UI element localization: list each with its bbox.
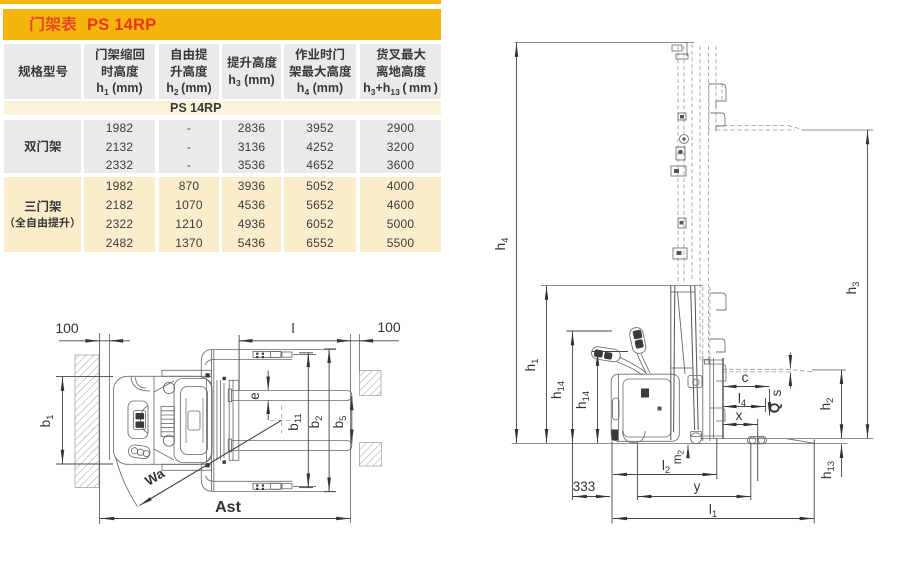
svg-text:h14: h14 bbox=[574, 391, 592, 409]
svg-text:100: 100 bbox=[377, 319, 401, 335]
svg-text:l2: l2 bbox=[662, 458, 670, 476]
svg-text:333: 333 bbox=[573, 479, 596, 494]
svg-text:h14: h14 bbox=[549, 381, 567, 399]
svg-text:b11: b11 bbox=[286, 413, 304, 430]
svg-text:x: x bbox=[736, 408, 743, 423]
svg-text:Wa: Wa bbox=[142, 465, 167, 488]
svg-text:s: s bbox=[769, 389, 784, 396]
svg-text:m2: m2 bbox=[672, 450, 686, 465]
svg-text:e: e bbox=[247, 392, 262, 400]
svg-text:h2: h2 bbox=[818, 398, 836, 411]
svg-text:Ast: Ast bbox=[215, 499, 241, 516]
svg-text:Q: Q bbox=[767, 403, 782, 414]
svg-text:l: l bbox=[291, 320, 294, 336]
svg-text:h13: h13 bbox=[819, 461, 837, 479]
svg-text:100: 100 bbox=[55, 320, 79, 336]
svg-text:h1: h1 bbox=[523, 359, 541, 372]
svg-text:h3: h3 bbox=[844, 282, 862, 295]
svg-text:c: c bbox=[742, 370, 749, 385]
svg-text:l1: l1 bbox=[709, 502, 717, 520]
svg-text:b2: b2 bbox=[307, 416, 325, 429]
svg-text:y: y bbox=[694, 479, 701, 494]
svg-text:b1: b1 bbox=[40, 415, 56, 428]
svg-text:h4: h4 bbox=[493, 238, 511, 251]
svg-text:b5: b5 bbox=[331, 416, 349, 429]
